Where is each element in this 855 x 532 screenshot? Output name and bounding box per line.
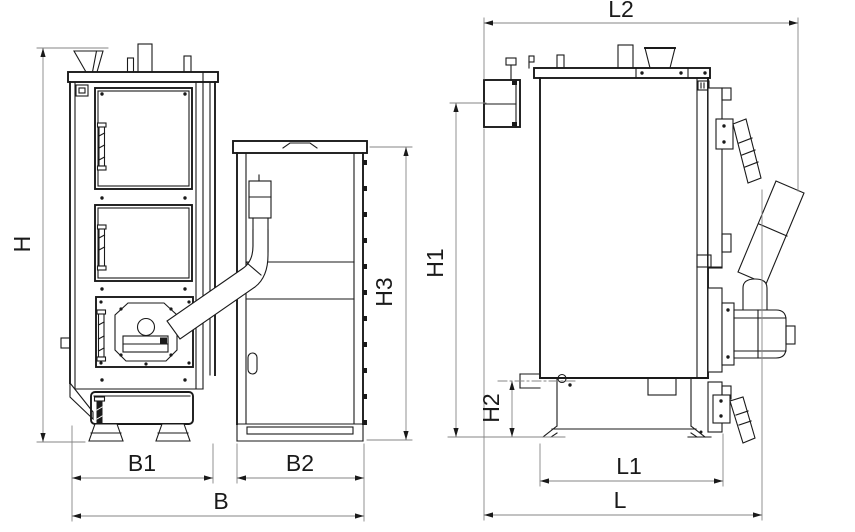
filler-funnel <box>74 51 103 72</box>
feed-inlet-cylinder <box>743 279 767 312</box>
dim-label-B1: B1 <box>128 450 156 476</box>
dim-label-L1: L1 <box>616 453 642 479</box>
dim-label-L2: L2 <box>608 0 634 22</box>
upper-door <box>95 88 192 189</box>
boiler-legs <box>89 424 190 441</box>
dimension-L: L <box>484 487 762 518</box>
drawing-canvas: H H3 B1 B2 B <box>0 0 855 532</box>
lower-door-handle <box>708 382 755 443</box>
upper-door-handle <box>716 119 761 183</box>
sensor-box <box>76 85 88 96</box>
dimension-H3: H3 <box>371 147 409 440</box>
top-plate <box>68 72 218 82</box>
top-plate-side <box>534 68 710 78</box>
dim-label-B2: B2 <box>286 450 314 476</box>
dimension-H2: H2 <box>478 381 515 437</box>
hopper-front <box>233 141 367 441</box>
hopper-door-handle <box>248 353 257 374</box>
dim-label-H2: H2 <box>478 393 504 422</box>
feed-tube-side <box>738 181 804 284</box>
feed-pipe-front <box>167 230 268 339</box>
base-notch <box>648 378 676 395</box>
dim-label-H: H <box>9 236 35 253</box>
technical-drawing: H H3 B1 B2 B <box>0 0 855 532</box>
dimension-H1: H1 <box>422 103 459 437</box>
dim-label-H3: H3 <box>371 277 397 306</box>
dimension-L1: L1 <box>540 453 723 484</box>
dimension-B2: B2 <box>237 450 364 481</box>
dimension-H: H <box>9 48 46 442</box>
dim-label-H1: H1 <box>422 248 448 277</box>
side-port-stub <box>61 338 70 348</box>
boiler-side <box>484 45 711 437</box>
chimney-stub-side <box>618 45 633 68</box>
boiler-front <box>61 44 218 441</box>
burner-assembly <box>708 279 795 372</box>
dimension-B1: B1 <box>72 450 213 481</box>
dimension-L2: L2 <box>484 0 798 26</box>
corner-chamfer <box>70 383 93 419</box>
base-side <box>537 378 711 437</box>
side-view <box>484 45 804 443</box>
flue-outlet <box>484 80 520 127</box>
chimney-stub <box>138 44 152 72</box>
front-view <box>61 44 367 441</box>
filler-collar <box>645 48 675 68</box>
dimension-B: B <box>72 488 364 519</box>
burner-sight-hole <box>138 319 155 336</box>
middle-door <box>95 205 192 281</box>
dim-label-B: B <box>213 488 228 514</box>
upper-door-edge <box>708 88 722 268</box>
burner-fan <box>786 326 795 344</box>
dim-label-L: L <box>614 487 627 513</box>
